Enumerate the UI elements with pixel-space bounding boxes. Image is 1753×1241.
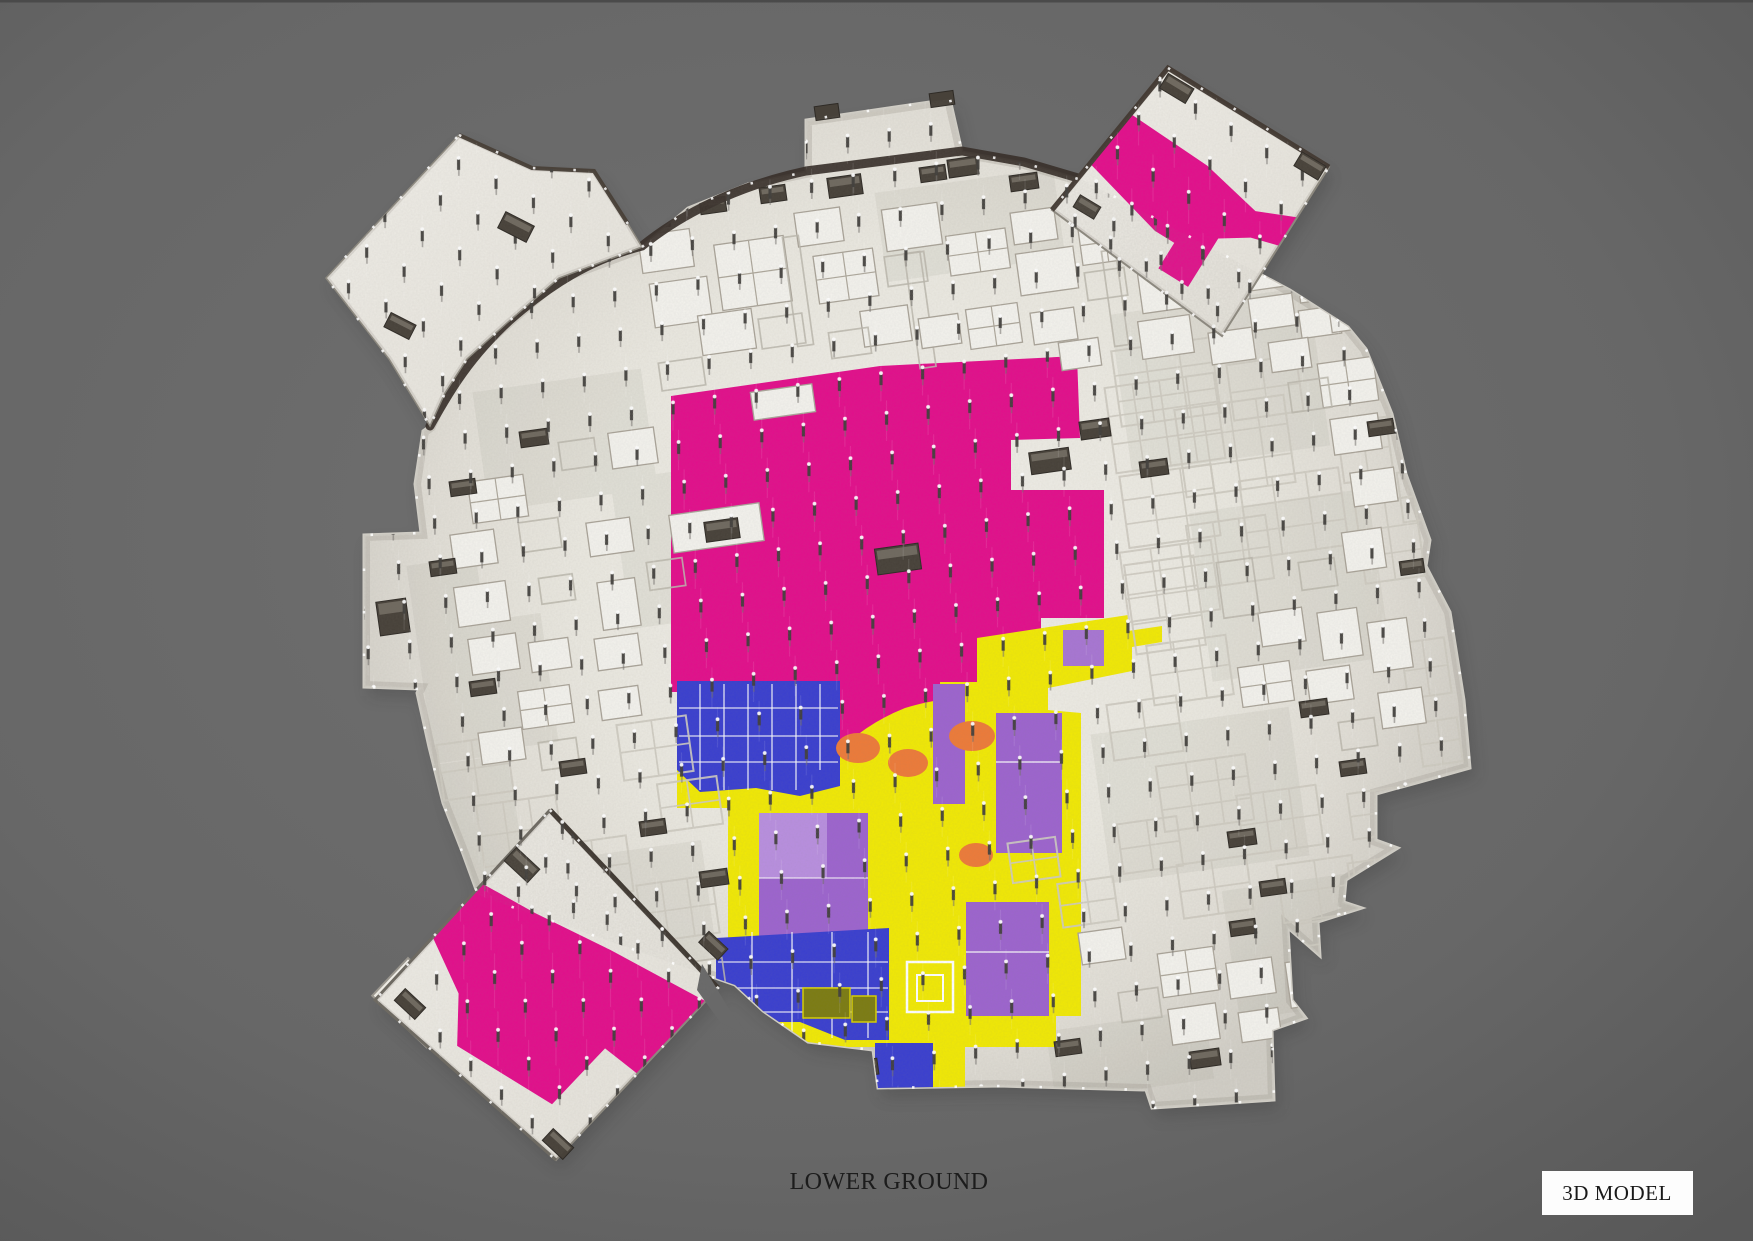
svg-text:LOWER GROUND: LOWER GROUND bbox=[790, 1169, 989, 1195]
svg-text:3D MODEL: 3D MODEL bbox=[1562, 1181, 1672, 1205]
